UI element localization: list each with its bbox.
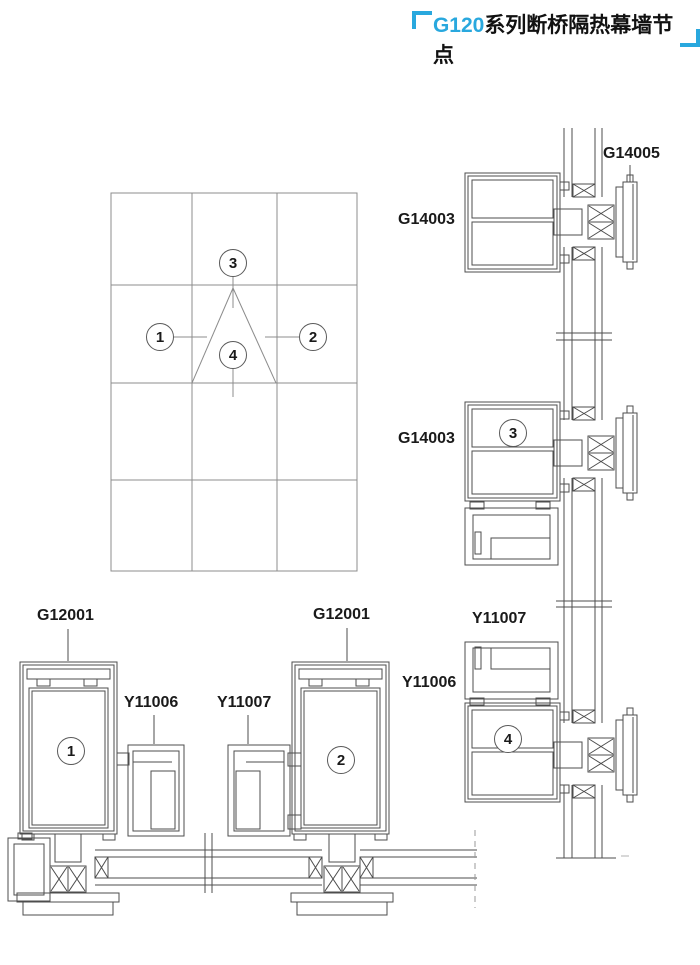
elevation-callout-2: 2 (299, 323, 327, 351)
y11006-profile (117, 745, 184, 836)
label-g14003-mid: G14003 (398, 430, 455, 448)
label-y11006-right: Y11006 (402, 674, 456, 692)
elevation-callout-1: 1 (146, 323, 174, 351)
detail-callout-2: 2 (327, 746, 355, 774)
label-y11007-left: Y11007 (217, 694, 271, 712)
glass-strip (556, 128, 629, 858)
jamb-profile (8, 833, 50, 901)
y11007-profile (228, 745, 301, 836)
detail-callout-4: 4 (494, 725, 522, 753)
drawing-canvas (0, 0, 700, 965)
label-y11007-right: Y11007 (472, 610, 526, 628)
elevation-callout-3: 3 (219, 249, 247, 277)
sash-profile-below (465, 502, 558, 565)
page: G120系列断桥隔热幕墙节点 (0, 0, 700, 965)
label-g14005: G14005 (603, 145, 660, 163)
detail-callout-3: 3 (499, 419, 527, 447)
elevation-callout-4: 4 (219, 341, 247, 369)
detail-callout-1: 1 (57, 737, 85, 765)
node-top-g14003 (465, 173, 637, 272)
label-g12001-mid: G12001 (313, 606, 370, 624)
horizontal-glass-panels (95, 830, 477, 908)
label-y11006-left: Y11006 (124, 694, 178, 712)
right-section-details (465, 128, 637, 858)
label-leader-lines (68, 165, 630, 744)
node-middle-g14003 (465, 402, 637, 565)
label-g14003-top: G14003 (398, 211, 455, 229)
node-bottom-y11006 (465, 642, 637, 802)
sash-profile-above (465, 642, 558, 705)
label-g12001-left: G12001 (37, 607, 94, 625)
